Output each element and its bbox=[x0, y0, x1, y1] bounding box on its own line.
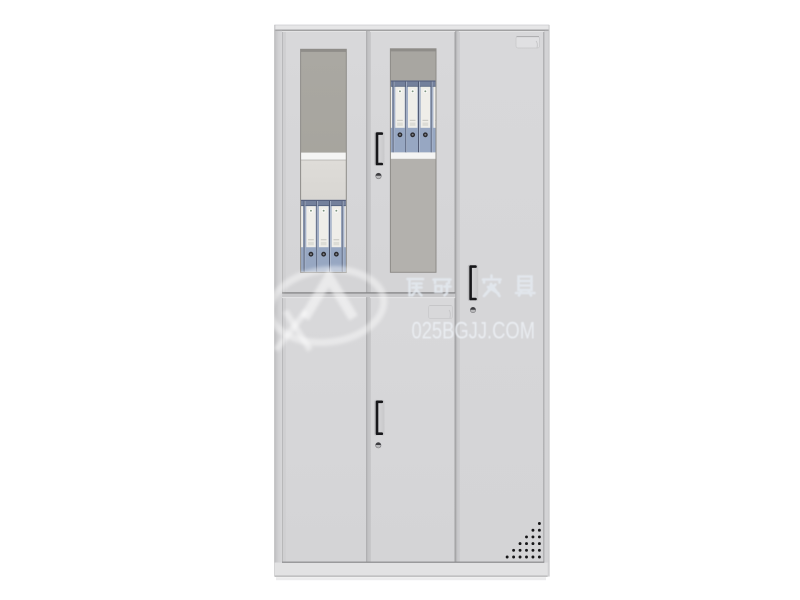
svg-text:025BGJJ.COM: 025BGJJ.COM bbox=[412, 317, 536, 344]
